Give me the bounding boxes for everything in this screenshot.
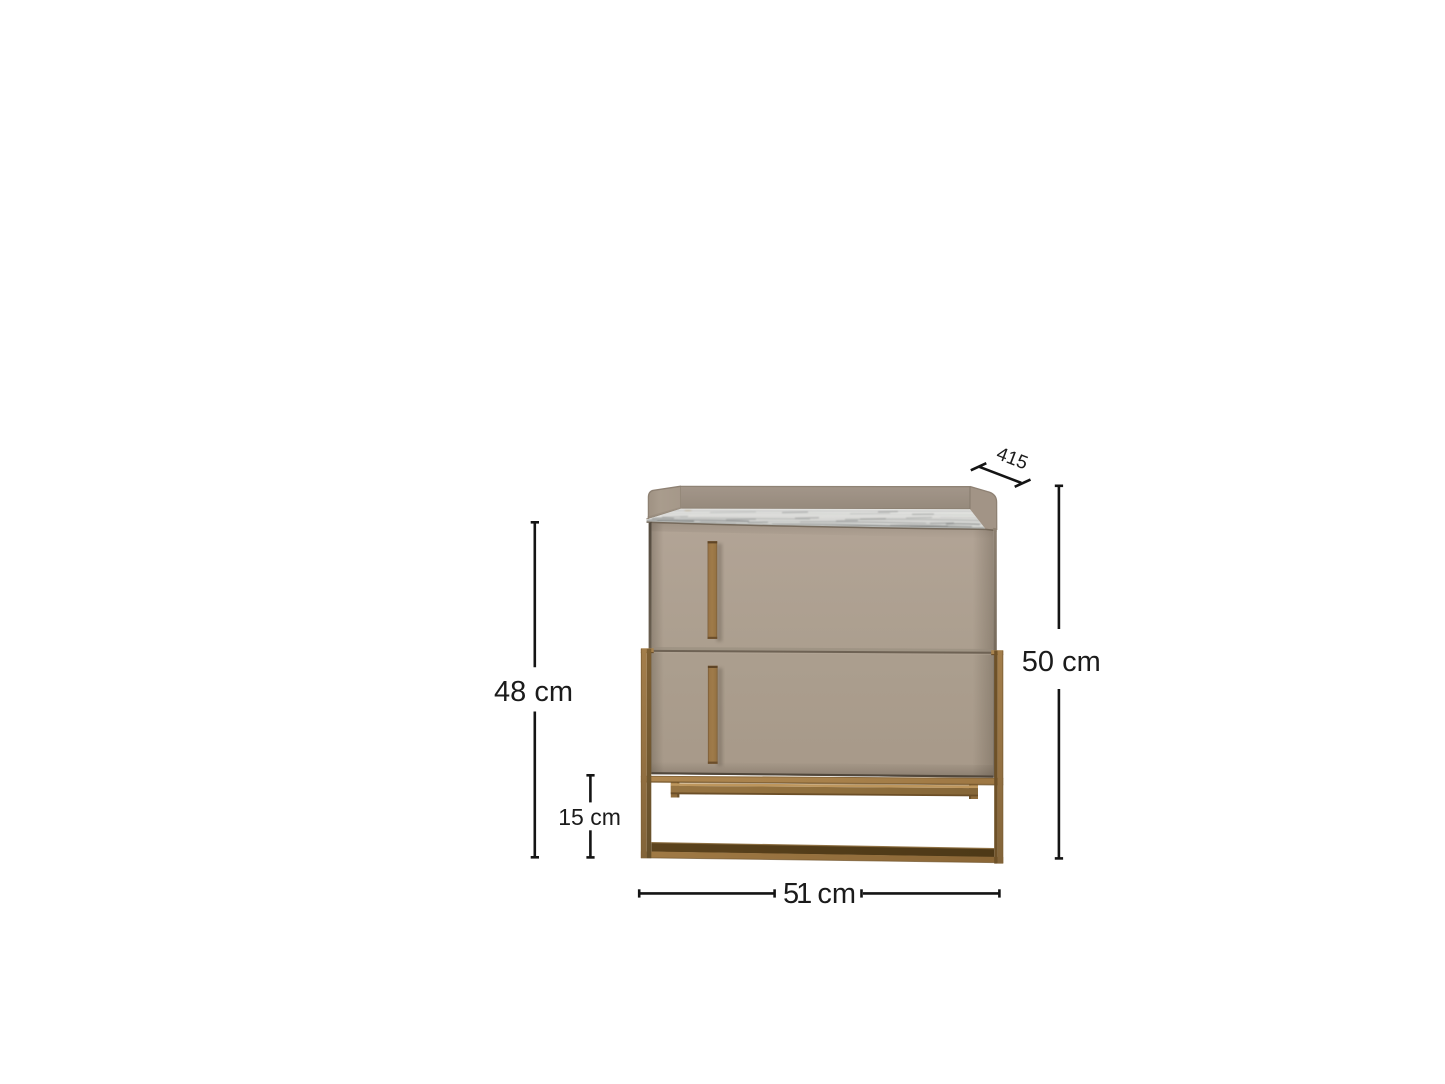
svg-text:48 cm: 48 cm xyxy=(494,676,573,708)
svg-text:15 cm: 15 cm xyxy=(558,804,621,830)
svg-text:51 cm: 51 cm xyxy=(783,878,856,910)
svg-text:50 cm: 50 cm xyxy=(1022,646,1101,678)
